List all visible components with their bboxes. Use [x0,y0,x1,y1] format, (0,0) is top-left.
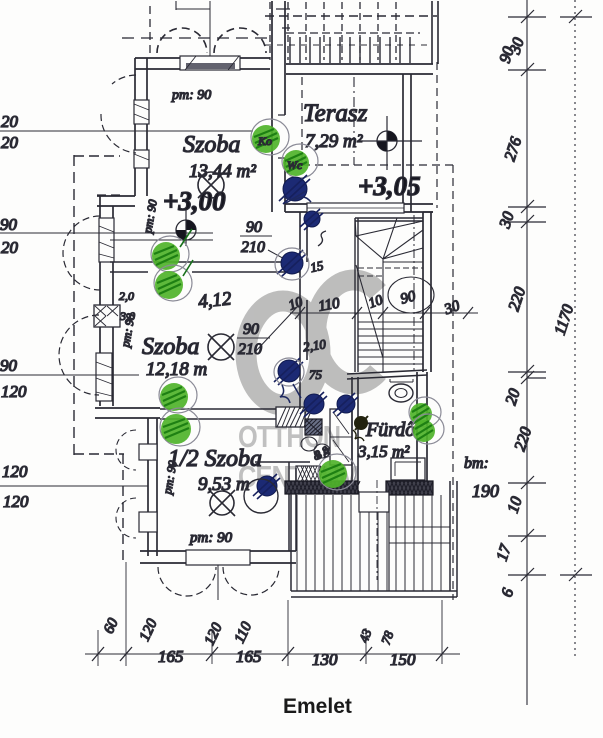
svg-text:90: 90 [243,321,259,338]
svg-text:120: 120 [3,492,29,511]
svg-text:1/2 Szoba: 1/2 Szoba [168,446,262,472]
svg-text:7,29 m²: 7,29 m² [305,131,363,152]
svg-text:3,15 m²: 3,15 m² [357,442,410,461]
svg-text:2,0: 2,0 [119,289,134,303]
svg-text:165: 165 [236,647,262,666]
svg-text:20: 20 [1,238,19,257]
svg-text:20: 20 [1,133,19,152]
svg-text:90: 90 [0,215,18,234]
svg-text:Szoba: Szoba [183,132,240,158]
svg-text:+3,00: +3,00 [163,186,226,216]
svg-text:90: 90 [0,356,18,375]
svg-text:bm:: bm: [464,455,489,472]
svg-text:150: 150 [390,650,416,669]
svg-text:pm: 90: pm: 90 [189,530,233,546]
svg-text:210: 210 [241,239,265,256]
svg-text:190: 190 [472,481,499,501]
svg-text:90: 90 [246,219,262,236]
svg-text:Ko: Ko [257,134,272,148]
svg-text:Szoba: Szoba [142,334,199,360]
svg-text:20: 20 [1,112,19,131]
svg-text:75: 75 [309,367,323,382]
svg-text:pm: 90: pm: 90 [171,88,211,103]
svg-text:120: 120 [2,462,28,481]
svg-text:3,0: 3,0 [119,309,135,323]
svg-text:130: 130 [312,650,338,669]
svg-text:9,53 m: 9,53 m [198,474,250,495]
svg-text:Wc: Wc [287,158,303,172]
svg-text:Fürdő: Fürdő [365,419,416,441]
svg-text:210: 210 [238,341,262,358]
svg-text:165: 165 [158,647,184,666]
svg-text:120: 120 [1,382,27,401]
svg-text:2,10: 2,10 [302,336,327,354]
svg-text:Terasz: Terasz [303,100,368,127]
svg-text:4,12: 4,12 [197,288,233,312]
svg-text:Emelet: Emelet [283,695,352,718]
svg-text:+3,05: +3,05 [358,171,421,201]
svg-text:13,44 m²: 13,44 m² [189,161,256,182]
